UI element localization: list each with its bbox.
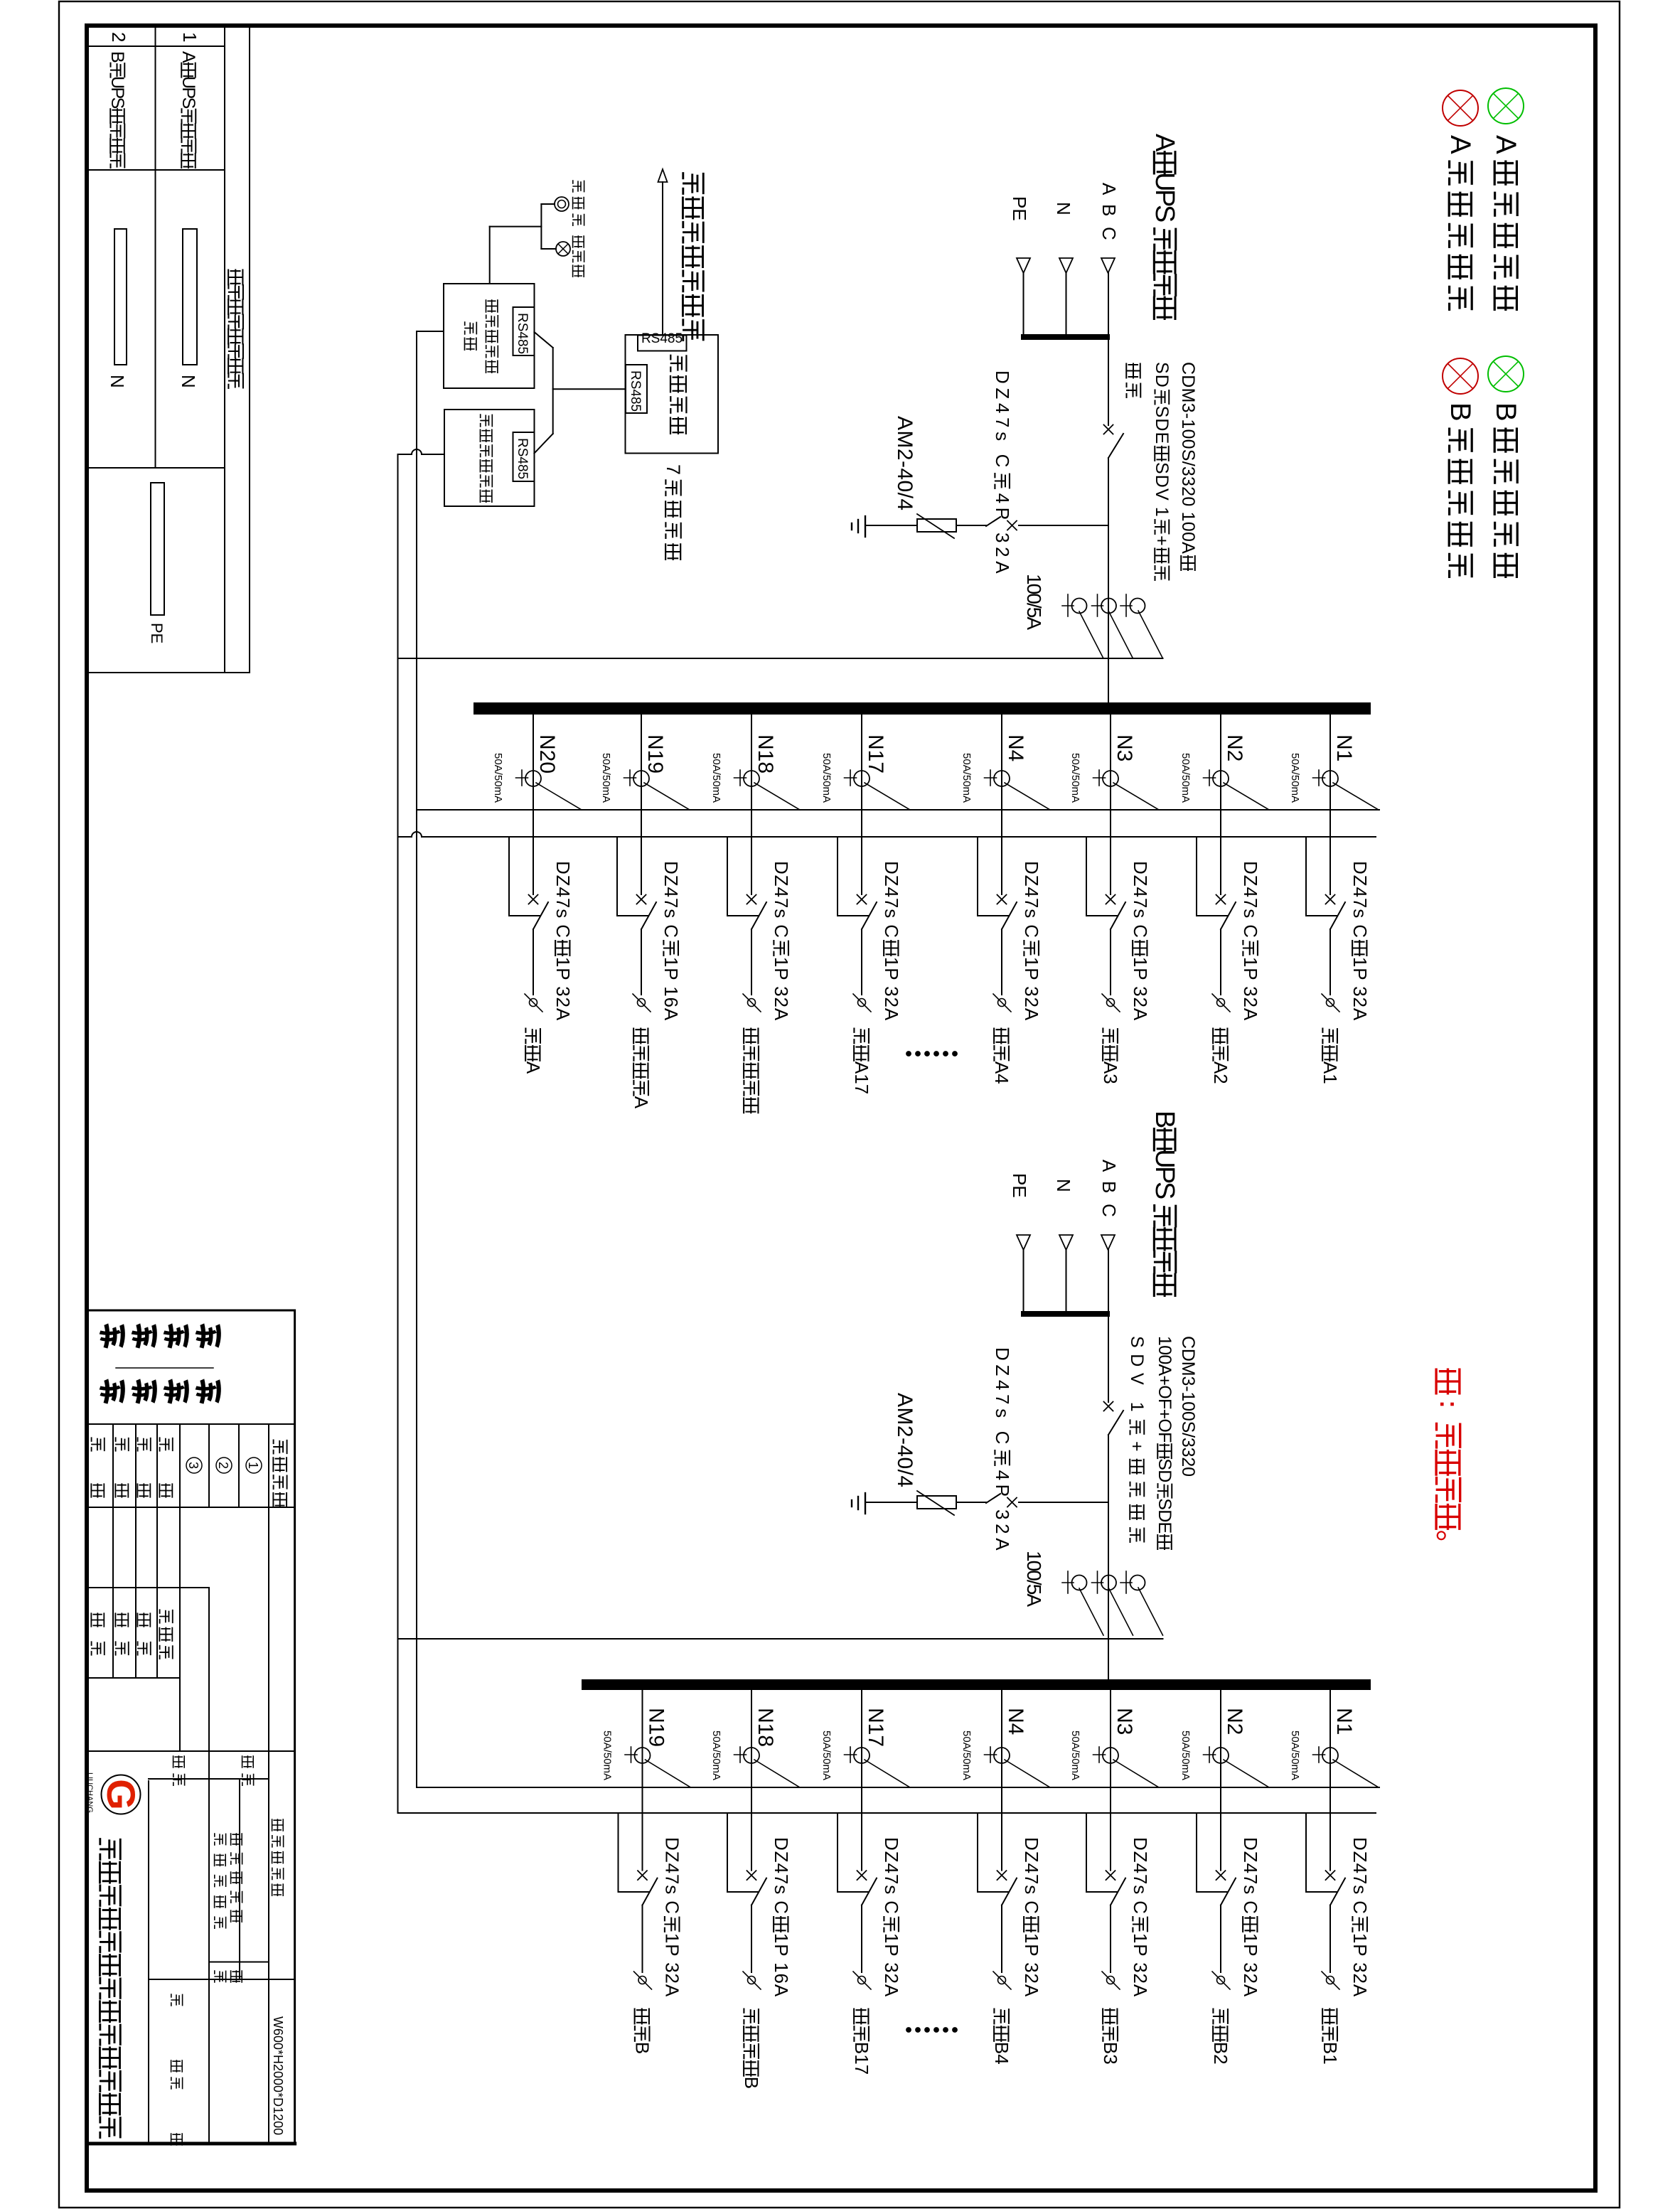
svg-text:RS485: RS485 — [628, 370, 643, 412]
svg-text:N4: N4 — [1004, 734, 1027, 761]
svg-text:1P 32A: 1P 32A — [1349, 1933, 1371, 1997]
svg-text:50A/50mA: 50A/50mA — [820, 1731, 833, 1780]
svg-text:50A/50mA: 50A/50mA — [1289, 1731, 1301, 1780]
svg-text:N18: N18 — [754, 734, 777, 774]
svg-text:A: A — [523, 1061, 544, 1074]
svg-text:W600*H2000*D1200: W600*H2000*D1200 — [271, 2016, 285, 2135]
svg-text:1P 32A: 1P 32A — [881, 1933, 902, 1997]
svg-text:DZ47s C: DZ47s C — [1240, 1837, 1261, 1915]
svg-text:+: + — [1152, 535, 1172, 547]
svg-text:SDV 1: SDV 1 — [1127, 1336, 1147, 1418]
svg-text:N2: N2 — [1223, 1708, 1246, 1735]
svg-text:N: N — [1053, 1179, 1074, 1192]
svg-text:1P 32A: 1P 32A — [1130, 957, 1151, 1021]
svg-text:DZ47s C: DZ47s C — [552, 861, 574, 938]
svg-text:A: A — [1098, 183, 1120, 196]
svg-text:SDE: SDE — [1152, 406, 1172, 445]
svg-text:N1: N1 — [1332, 734, 1356, 761]
svg-text:N4: N4 — [1004, 1708, 1027, 1735]
svg-text:100/5A: 100/5A — [1023, 1551, 1045, 1607]
svg-text:50A/50mA: 50A/50mA — [820, 753, 833, 803]
svg-text:1P 32A: 1P 32A — [662, 1933, 683, 1997]
svg-text:1P 32A: 1P 32A — [1021, 957, 1042, 1021]
svg-text:DZ47s C: DZ47s C — [992, 1347, 1013, 1448]
svg-text:B: B — [1490, 402, 1521, 426]
svg-text:G: G — [99, 1779, 144, 1810]
svg-text:4P 32A: 4P 32A — [992, 493, 1013, 578]
svg-text:DZ47s C: DZ47s C — [660, 861, 682, 938]
svg-text:AM2-40/4: AM2-40/4 — [893, 416, 916, 510]
svg-text:1P 32A: 1P 32A — [1240, 1933, 1261, 1997]
svg-text:100/5A: 100/5A — [1023, 574, 1045, 630]
svg-text:LIUCHANG: LIUCHANG — [85, 1772, 94, 1813]
svg-text:DZ47s C: DZ47s C — [881, 1837, 902, 1915]
svg-text:RS485: RS485 — [515, 313, 530, 354]
svg-text:C: C — [1098, 227, 1120, 240]
svg-text:1P 32A: 1P 32A — [1349, 957, 1371, 1021]
svg-text:A: A — [1490, 135, 1521, 159]
svg-text:PE: PE — [1009, 1173, 1030, 1198]
svg-text:B: B — [1150, 1111, 1179, 1128]
svg-text:B: B — [632, 2042, 653, 2054]
svg-text:B: B — [1445, 402, 1476, 426]
svg-text:50A/50mA: 50A/50mA — [601, 1731, 614, 1780]
svg-text:N: N — [178, 375, 199, 388]
svg-text:A3: A3 — [1100, 1061, 1121, 1084]
svg-text:B4: B4 — [991, 2042, 1012, 2065]
svg-text:CDM3-100S/3320 100A: CDM3-100S/3320 100A — [1178, 362, 1198, 554]
svg-text:2: 2 — [216, 1462, 230, 1469]
svg-text:1P 32A: 1P 32A — [1240, 957, 1261, 1021]
svg-text:RS485: RS485 — [515, 438, 530, 479]
svg-text:1P 32A: 1P 32A — [881, 957, 902, 1021]
svg-text:N18: N18 — [754, 1708, 777, 1747]
svg-text:7: 7 — [663, 464, 684, 478]
svg-text:50A/50mA: 50A/50mA — [710, 1731, 722, 1780]
svg-text:DZ47s C: DZ47s C — [1021, 1837, 1042, 1915]
svg-text:PE: PE — [1009, 196, 1030, 221]
svg-text:50A/50mA: 50A/50mA — [492, 753, 504, 803]
svg-text:1P 32A: 1P 32A — [771, 957, 792, 1021]
svg-text:B1: B1 — [1320, 2042, 1341, 2065]
svg-text:N: N — [1053, 202, 1074, 215]
svg-text:CDM3-100S/3320: CDM3-100S/3320 — [1178, 1336, 1198, 1477]
svg-text:B: B — [1098, 1181, 1120, 1193]
svg-text:UPS: UPS — [107, 76, 127, 109]
svg-text:N2: N2 — [1223, 734, 1246, 761]
svg-text:A4: A4 — [991, 1061, 1012, 1084]
svg-text:A: A — [631, 1096, 652, 1109]
svg-text:N17: N17 — [864, 1708, 887, 1747]
svg-text:UPS: UPS — [1150, 172, 1179, 222]
svg-text:N3: N3 — [1113, 1708, 1136, 1735]
svg-text:+: + — [1127, 1441, 1147, 1457]
svg-text:1: 1 — [179, 32, 200, 42]
svg-text:A: A — [1098, 1160, 1120, 1172]
svg-text:50A/50mA: 50A/50mA — [1179, 753, 1192, 803]
svg-text:N19: N19 — [643, 734, 667, 774]
svg-text:DZ47s C: DZ47s C — [1021, 861, 1042, 938]
svg-text:UPS: UPS — [178, 76, 198, 109]
svg-text:1P 32A: 1P 32A — [1021, 1933, 1042, 1997]
svg-text:C: C — [1098, 1204, 1120, 1217]
svg-text:SDE: SDE — [1155, 1498, 1175, 1533]
svg-text:AM2-40/4: AM2-40/4 — [893, 1393, 916, 1487]
svg-text:50A/50mA: 50A/50mA — [1069, 753, 1081, 803]
svg-text:50A/50mA: 50A/50mA — [1289, 753, 1301, 803]
svg-text:DZ47s C: DZ47s C — [1130, 1837, 1151, 1915]
svg-text:B: B — [741, 2077, 762, 2089]
svg-text:DZ47s C: DZ47s C — [1240, 861, 1261, 938]
svg-text:A2: A2 — [1210, 1061, 1231, 1084]
svg-text:50A/50mA: 50A/50mA — [961, 753, 973, 803]
svg-text:50A/50mA: 50A/50mA — [1179, 1731, 1192, 1780]
svg-text:50A/50mA: 50A/50mA — [1069, 1731, 1081, 1780]
svg-text:DZ47s C: DZ47s C — [662, 1837, 683, 1915]
svg-text:SD: SD — [1155, 1458, 1175, 1482]
svg-text:1P 32A: 1P 32A — [552, 957, 574, 1021]
svg-text:1: 1 — [246, 1462, 260, 1469]
svg-text:1P 16A: 1P 16A — [660, 957, 682, 1021]
svg-text:SD: SD — [1152, 362, 1172, 388]
svg-text:N3: N3 — [1113, 734, 1136, 761]
svg-text:B3: B3 — [1100, 2042, 1121, 2065]
svg-text:2: 2 — [108, 32, 129, 42]
svg-text:B: B — [1098, 204, 1120, 216]
svg-text:A17: A17 — [851, 1061, 872, 1094]
svg-text:B17: B17 — [851, 2042, 872, 2075]
svg-text:N20: N20 — [535, 734, 559, 774]
svg-text:3: 3 — [186, 1462, 200, 1469]
svg-text:DZ47s C: DZ47s C — [771, 861, 792, 938]
svg-text:DZ47s C: DZ47s C — [1349, 861, 1371, 938]
svg-text:1P 32A: 1P 32A — [1130, 1933, 1151, 1997]
svg-text:B2: B2 — [1210, 2042, 1231, 2065]
svg-text:100A+OF+OF: 100A+OF+OF — [1155, 1336, 1175, 1443]
svg-text:A1: A1 — [1320, 1061, 1341, 1084]
svg-text:DZ47s C: DZ47s C — [1349, 1837, 1371, 1915]
svg-text:DZ47s C: DZ47s C — [881, 861, 902, 938]
svg-text:DZ47s C: DZ47s C — [992, 370, 1013, 471]
svg-text:SDV 1: SDV 1 — [1152, 462, 1172, 518]
svg-text:UPS: UPS — [1150, 1149, 1179, 1199]
svg-text:50A/50mA: 50A/50mA — [961, 1731, 973, 1780]
svg-text:A: A — [1445, 135, 1476, 159]
svg-text:50A/50mA: 50A/50mA — [710, 753, 722, 803]
svg-text:N17: N17 — [864, 734, 887, 774]
svg-text:50A/50mA: 50A/50mA — [600, 753, 612, 803]
svg-text:N: N — [107, 375, 128, 388]
svg-text:PE: PE — [148, 623, 166, 643]
svg-text:N19: N19 — [645, 1708, 668, 1747]
svg-text:1P 16A: 1P 16A — [771, 1933, 792, 1997]
svg-text:DZ47s C: DZ47s C — [1130, 861, 1151, 938]
svg-text:4P 32A: 4P 32A — [992, 1470, 1013, 1555]
svg-text:B: B — [107, 51, 127, 63]
svg-text:DZ47s C: DZ47s C — [771, 1837, 792, 1915]
svg-text:N1: N1 — [1332, 1708, 1356, 1735]
